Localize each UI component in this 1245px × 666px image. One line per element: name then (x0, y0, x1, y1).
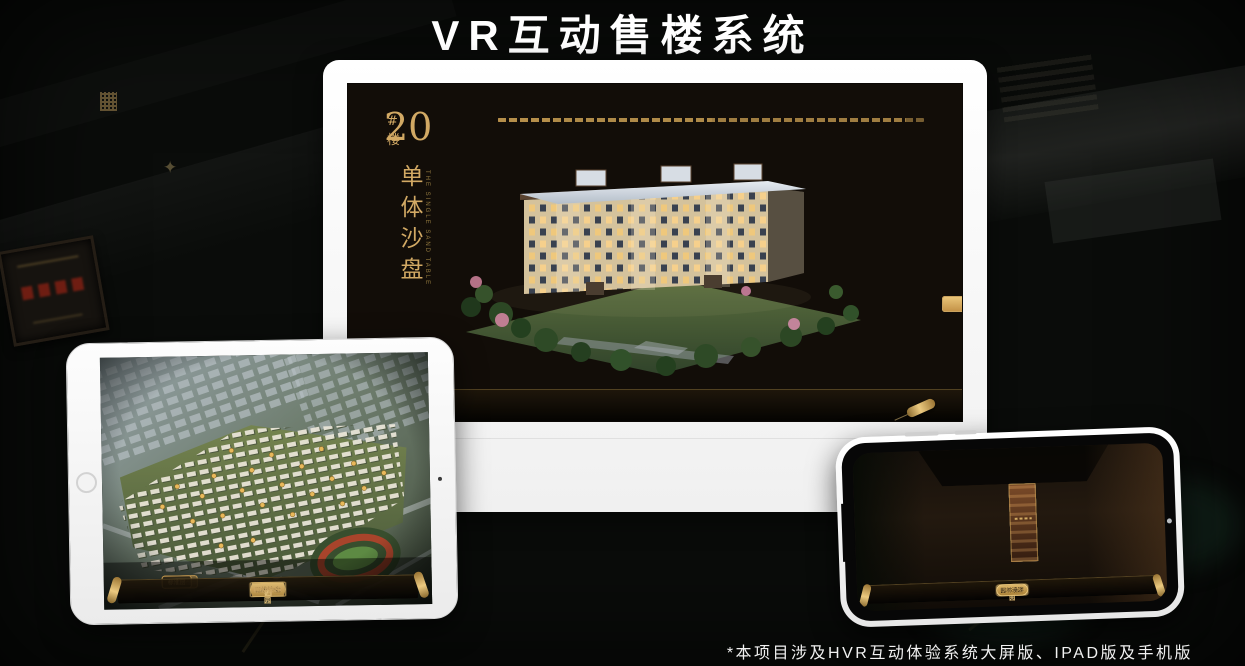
page-title: VR互动售楼系统 (0, 2, 1245, 63)
camera-dot-icon (438, 477, 442, 481)
compass-icon: ✦ (163, 158, 177, 178)
phone-bezel: 区位交通 三维沙盘 样板间VR 如园 户型鉴赏 园林漫游 项目赏析 (841, 432, 1179, 621)
phone-notch (841, 503, 855, 561)
volume-button[interactable] (905, 431, 939, 436)
poster-canvas: ✦ VR互动售楼系统 20 #楼 单体沙盘 THE SINGLE SAND TA… (0, 0, 1245, 666)
gallery-panel-6[interactable] (1008, 483, 1038, 562)
nav-item-project-gallery[interactable]: 项目赏析 (996, 583, 1028, 596)
building-3d-model[interactable] (406, 142, 906, 402)
award-plaque (0, 235, 110, 346)
power-button[interactable] (955, 430, 977, 435)
map-grid-icon (100, 92, 117, 111)
camera-dot-icon (1167, 518, 1172, 523)
phone-screen: 区位交通 三维沙盘 样板间VR 如园 户型鉴赏 园林漫游 项目赏析 (852, 443, 1167, 612)
nav-item-project-gallery[interactable]: 项目赏析 (250, 582, 286, 598)
home-button[interactable] (76, 472, 97, 493)
floor-button-20[interactable]: 20#楼 (942, 296, 963, 312)
masterplan-aerial-view[interactable] (100, 352, 432, 610)
interior-pergola-silhouette (918, 445, 1109, 488)
footnote-text: *本项目涉及HVR互动体验系统大屏版、IPAD版及手机版 (727, 639, 1193, 663)
building-number-suffix: #楼 (387, 114, 400, 148)
ipad-tablet: 项目沙盘 单体沙盘 标准层 区位交通 三维沙盘 样板间VR 如园 户型鉴赏 园林… (66, 337, 459, 626)
ipad-screen: 项目沙盘 单体沙盘 标准层 区位交通 三维沙盘 样板间VR 如园 户型鉴赏 园林… (100, 352, 432, 610)
smartphone: 区位交通 三维沙盘 样板间VR 如园 户型鉴赏 园林漫游 项目赏析 (835, 426, 1185, 628)
